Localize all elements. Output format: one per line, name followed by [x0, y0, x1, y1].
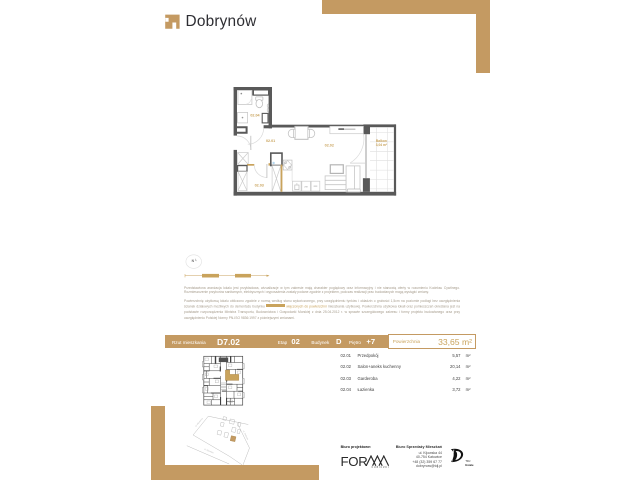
svg-text:02.01: 02.01 [266, 139, 275, 143]
svg-text:02.02: 02.02 [325, 144, 334, 148]
svg-text:02.03: 02.03 [255, 183, 264, 187]
svg-text:3,04 m²: 3,04 m² [376, 143, 388, 147]
svg-text:zm: zm [304, 186, 307, 189]
svg-text:Estate: Estate [465, 463, 474, 467]
svg-text:02.04: 02.04 [250, 113, 260, 117]
svg-text:N: N [192, 259, 195, 263]
svg-text:TDJ: TDJ [465, 459, 471, 463]
svg-text:ul. Wiosenna: ul. Wiosenna [195, 417, 204, 427]
